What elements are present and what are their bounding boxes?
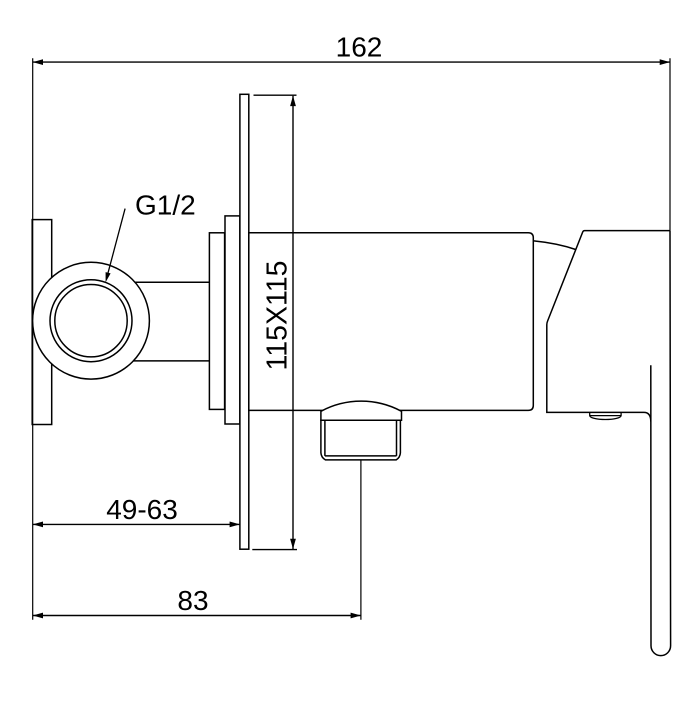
svg-text:83: 83 <box>177 585 208 616</box>
svg-text:G1/2: G1/2 <box>135 189 196 220</box>
svg-text:162: 162 <box>336 32 383 63</box>
svg-text:115X115: 115X115 <box>262 261 294 371</box>
svg-text:49-63: 49-63 <box>106 494 178 525</box>
